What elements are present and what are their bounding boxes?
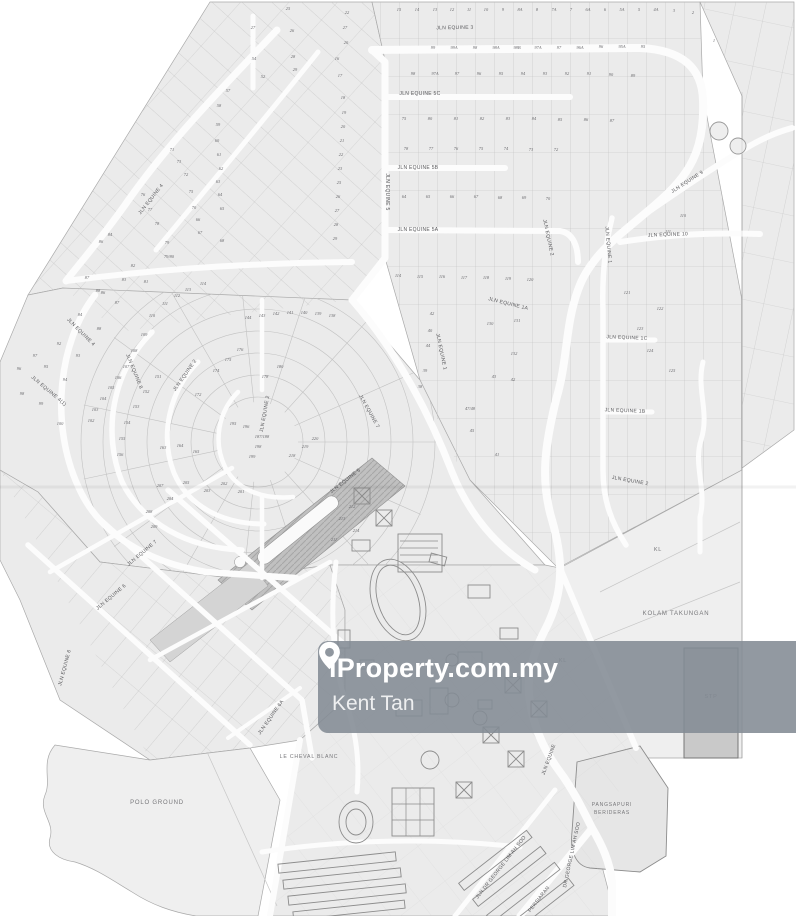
plot-number: 99A	[450, 45, 457, 50]
plot-number: 106	[115, 375, 122, 380]
plot-number: 79/80	[164, 254, 175, 259]
plot-number: 91	[587, 71, 591, 76]
plot-number: 98A	[492, 45, 499, 50]
area-label: LE CHEVAL BLANC	[280, 754, 339, 760]
plot-number: 209	[151, 524, 158, 529]
watermark-brand: iProperty.com.my	[329, 655, 558, 682]
watermark-brand-row: iProperty.com.my	[329, 652, 796, 684]
plot-number: 97A	[431, 71, 438, 76]
plot-number: 118	[483, 275, 490, 280]
plot-number: 139	[315, 311, 322, 316]
plot-number: 202	[221, 481, 228, 486]
plot-number: 47/48	[465, 406, 476, 411]
plot-number: 213	[339, 516, 346, 521]
plot-number: 140	[301, 310, 308, 315]
plot-number: 196	[243, 424, 250, 429]
plot-number: 110	[149, 313, 156, 318]
plot-number: 205	[183, 480, 190, 485]
plot-number: 152	[143, 389, 150, 394]
plot-number: 21	[340, 138, 344, 143]
plot-number: 110	[680, 213, 687, 218]
plot-number: 104	[100, 396, 107, 401]
plot-number: 96A	[576, 45, 583, 50]
plot-number: 199	[249, 454, 256, 459]
plot-number: 211	[331, 537, 337, 542]
plot-number: 212	[349, 504, 356, 509]
plot-number: 153	[133, 404, 140, 409]
plot-number: 71	[170, 147, 174, 152]
plot-number: 120	[527, 277, 534, 282]
plot-number: 113	[185, 287, 192, 292]
plot-number: 207	[157, 483, 164, 488]
location-pin-icon	[318, 641, 341, 670]
plot-number: 8A	[518, 7, 523, 12]
plot-number: 163	[160, 445, 167, 450]
plot-number: 144	[245, 315, 252, 320]
plot-number: 219	[302, 444, 309, 449]
plot-number: 6A	[586, 7, 591, 12]
plot-number: 131	[514, 318, 521, 323]
plot-number: 155	[119, 436, 126, 441]
plot-number: 187/188	[255, 434, 270, 439]
plot-number: 141	[287, 310, 294, 315]
plot-number: 5A	[620, 7, 625, 12]
plot-number: 203	[204, 488, 211, 493]
plot-number: 125	[669, 368, 676, 373]
plot-number: 81	[454, 116, 458, 121]
plot-number: 114	[200, 281, 207, 286]
area-label: KOLAM TAKUNGAN	[643, 611, 710, 617]
plot-number: 11	[467, 7, 471, 12]
plot-number: 156	[117, 452, 124, 457]
area-label: PANGSAPURI	[592, 802, 632, 808]
plot-number: 108	[131, 348, 138, 353]
plot-number: 100	[57, 421, 64, 426]
plot-number: 142	[273, 311, 280, 316]
street-label: JLN EQUINE 5	[384, 173, 390, 210]
plot-number: 124	[647, 348, 654, 353]
plot-number: 132	[511, 351, 518, 356]
plot-number: 119	[505, 276, 512, 281]
plot-number: 172	[195, 392, 202, 397]
plot-number: 95A	[618, 44, 625, 49]
plot-number: 116	[439, 274, 446, 279]
plot-number: 7A	[552, 7, 557, 12]
plot-number: 198	[255, 444, 262, 449]
street-label: JLN EQUINE 3	[436, 25, 473, 32]
site-plan-svg: 15141312111098A87A76A65A54A3219999A9898A…	[0, 0, 796, 916]
plot-number: 174	[213, 368, 220, 373]
plot-number: 138	[329, 313, 336, 318]
street-label: JLN EQUINE 5A	[398, 227, 439, 233]
plot-number: 111	[162, 301, 168, 306]
street-label: JLN EQUINE 5C	[399, 91, 440, 97]
plot-number: 97A	[534, 45, 541, 50]
street-label: JLN EQUINE 5B	[398, 165, 439, 171]
plot-number: 176	[237, 347, 244, 352]
plot-number: 201	[238, 489, 245, 494]
plot-number: 130	[487, 321, 494, 326]
plot-number: 151	[155, 374, 162, 379]
plot-number: 121	[624, 290, 631, 295]
plot-number: 4A	[654, 7, 659, 12]
area-label: POLO GROUND	[130, 800, 184, 806]
plot-number: 123	[637, 326, 644, 331]
plot-number: 214	[353, 528, 360, 533]
plot-number: 103	[92, 407, 99, 412]
plot-number: 180	[277, 364, 284, 369]
plot-number: 98B	[513, 45, 520, 50]
plot-number: 164	[177, 443, 184, 448]
plot-number: 154	[124, 420, 131, 425]
plot-number: 115	[417, 274, 424, 279]
plot-number: 102	[88, 418, 95, 423]
plot-number: 109	[141, 332, 148, 337]
plot-number: 117	[461, 275, 468, 280]
site-plan-image: 15141312111098A87A76A65A54A3219999A9898A…	[0, 0, 796, 916]
plot-number: 81	[144, 279, 148, 284]
plot-number: 122	[657, 306, 664, 311]
plot-number: 218	[289, 453, 296, 458]
area-label: KL	[654, 547, 662, 553]
plot-number: 105	[108, 385, 115, 390]
plot-number: 61	[217, 152, 221, 157]
plot-number: 208	[146, 509, 153, 514]
plot-number: 178	[262, 374, 269, 379]
watermark-agent-name: Kent Tan	[332, 693, 796, 714]
area-label: BERIDERAS	[594, 810, 630, 816]
plot-number: 175	[225, 357, 232, 362]
plot-number: 114	[395, 273, 402, 278]
watermark-band: iProperty.com.my Kent Tan	[318, 641, 796, 733]
plot-number: 1	[713, 38, 715, 43]
plot-number: 220	[312, 436, 319, 441]
plot-number: 204	[167, 496, 174, 501]
plot-number: 195	[230, 421, 237, 426]
plot-number: 112	[174, 293, 181, 298]
plot-number: 41	[495, 452, 499, 457]
plot-number: 143	[259, 313, 266, 318]
plot-number: 165	[193, 449, 200, 454]
